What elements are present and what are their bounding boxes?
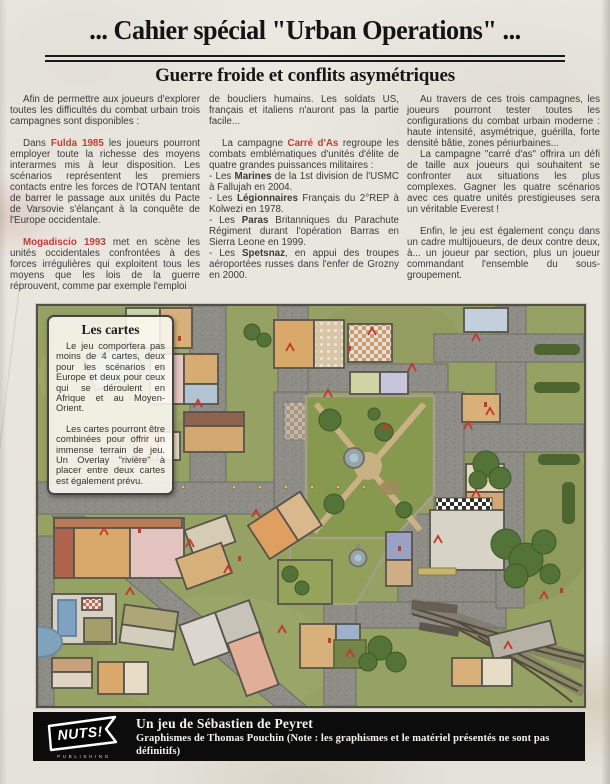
paragraph: La campagne "carré d'as" offrira un défi… (407, 149, 600, 215)
unit-name-spetsnaz: Spetsnaz (242, 248, 285, 259)
page-title: ... Cahier spécial "Urban Operations" ..… (9, 13, 601, 47)
text-run: - Les (209, 248, 242, 259)
paragraph: Afin de permettre aux joueurs d'explorer… (10, 94, 200, 127)
unit-name-paras: Paras (242, 215, 269, 226)
unit-name-marines: Marines (235, 171, 272, 182)
nuts-publishing-logo: NUTS! PUBLISHING (45, 714, 123, 760)
text-run: - Les (209, 215, 242, 226)
campaign-name-carre-das: Carré d'As (288, 138, 339, 149)
paper-crease (0, 276, 21, 509)
text-run: Afin de permettre aux joueurs d'explorer… (10, 94, 200, 127)
text-run: La campagne (222, 138, 288, 149)
text-column-1: Afin de permettre aux joueurs d'explorer… (10, 94, 200, 292)
credits-text: Un jeu de Sébastien de Peyret Graphismes… (136, 716, 585, 758)
paragraph: Les cartes pourront être combinées pour … (56, 424, 165, 486)
text-run: - Les (209, 193, 237, 204)
paragraph: Mogadiscio 1993 met en scène les unités … (10, 237, 200, 292)
section-subtitle: Guerre froide et conflits asymétriques (0, 64, 610, 88)
list-item: - Les Spetsnaz, en appui des troupes aér… (209, 248, 399, 281)
credits-bar: NUTS! PUBLISHING Un jeu de Sébastien de … (33, 712, 585, 761)
cartes-inset-box: Les cartes Le jeu comportera pas moins d… (47, 315, 174, 495)
cartes-box-title: Les cartes (56, 322, 165, 337)
campaign-name-fulda: Fulda 1985 (51, 138, 104, 149)
text-column-3: Au travers de ces trois campagnes, les j… (407, 94, 600, 281)
credit-line-graphics: Graphismes de Thomas Pouchin (Note : les… (136, 732, 585, 758)
text-column-2: de boucliers humains. Les soldats US, fr… (209, 94, 399, 281)
text-run: les joueurs pourront employer toute la r… (10, 138, 200, 226)
paragraph: La campagne Carré d'As regroupe les comb… (209, 138, 399, 171)
logo-subtext: PUBLISHING (57, 754, 111, 759)
header-double-rule (45, 55, 565, 62)
unit-name-legionnaires: Légionnaires (237, 193, 298, 204)
text-run: Enfin, le jeu est également conçu dans u… (407, 226, 600, 281)
paragraph: Enfin, le jeu est également conçu dans u… (407, 226, 600, 281)
list-item: - Les Paras Britanniques du Parachute Ré… (209, 215, 399, 248)
text-run: - Les (209, 171, 235, 182)
paragraph: Le jeu comportera pas moins de 4 cartes,… (56, 341, 165, 414)
paragraph: de boucliers humains. Les soldats US, fr… (209, 94, 399, 127)
campaign-name-mogadiscio: Mogadiscio 1993 (23, 237, 106, 248)
text-run: Au travers de ces trois campagnes, les j… (407, 94, 600, 149)
list-item: - Les Légionnaires Français du 2°REP à K… (209, 193, 399, 215)
paragraph: Au travers de ces trois campagnes, les j… (407, 94, 600, 149)
credit-line-designer: Un jeu de Sébastien de Peyret (136, 716, 585, 732)
text-run: de boucliers humains. Les soldats US, fr… (209, 94, 399, 127)
magazine-page: ... Cahier spécial "Urban Operations" ..… (0, 0, 610, 784)
text-run: Dans (23, 138, 51, 149)
paragraph: Dans Fulda 1985 les joueurs pourront emp… (10, 138, 200, 226)
list-item: - Les Marines de la 1st division de l'US… (209, 171, 399, 193)
text-run: La campagne "carré d'as" offrira un défi… (407, 149, 600, 215)
